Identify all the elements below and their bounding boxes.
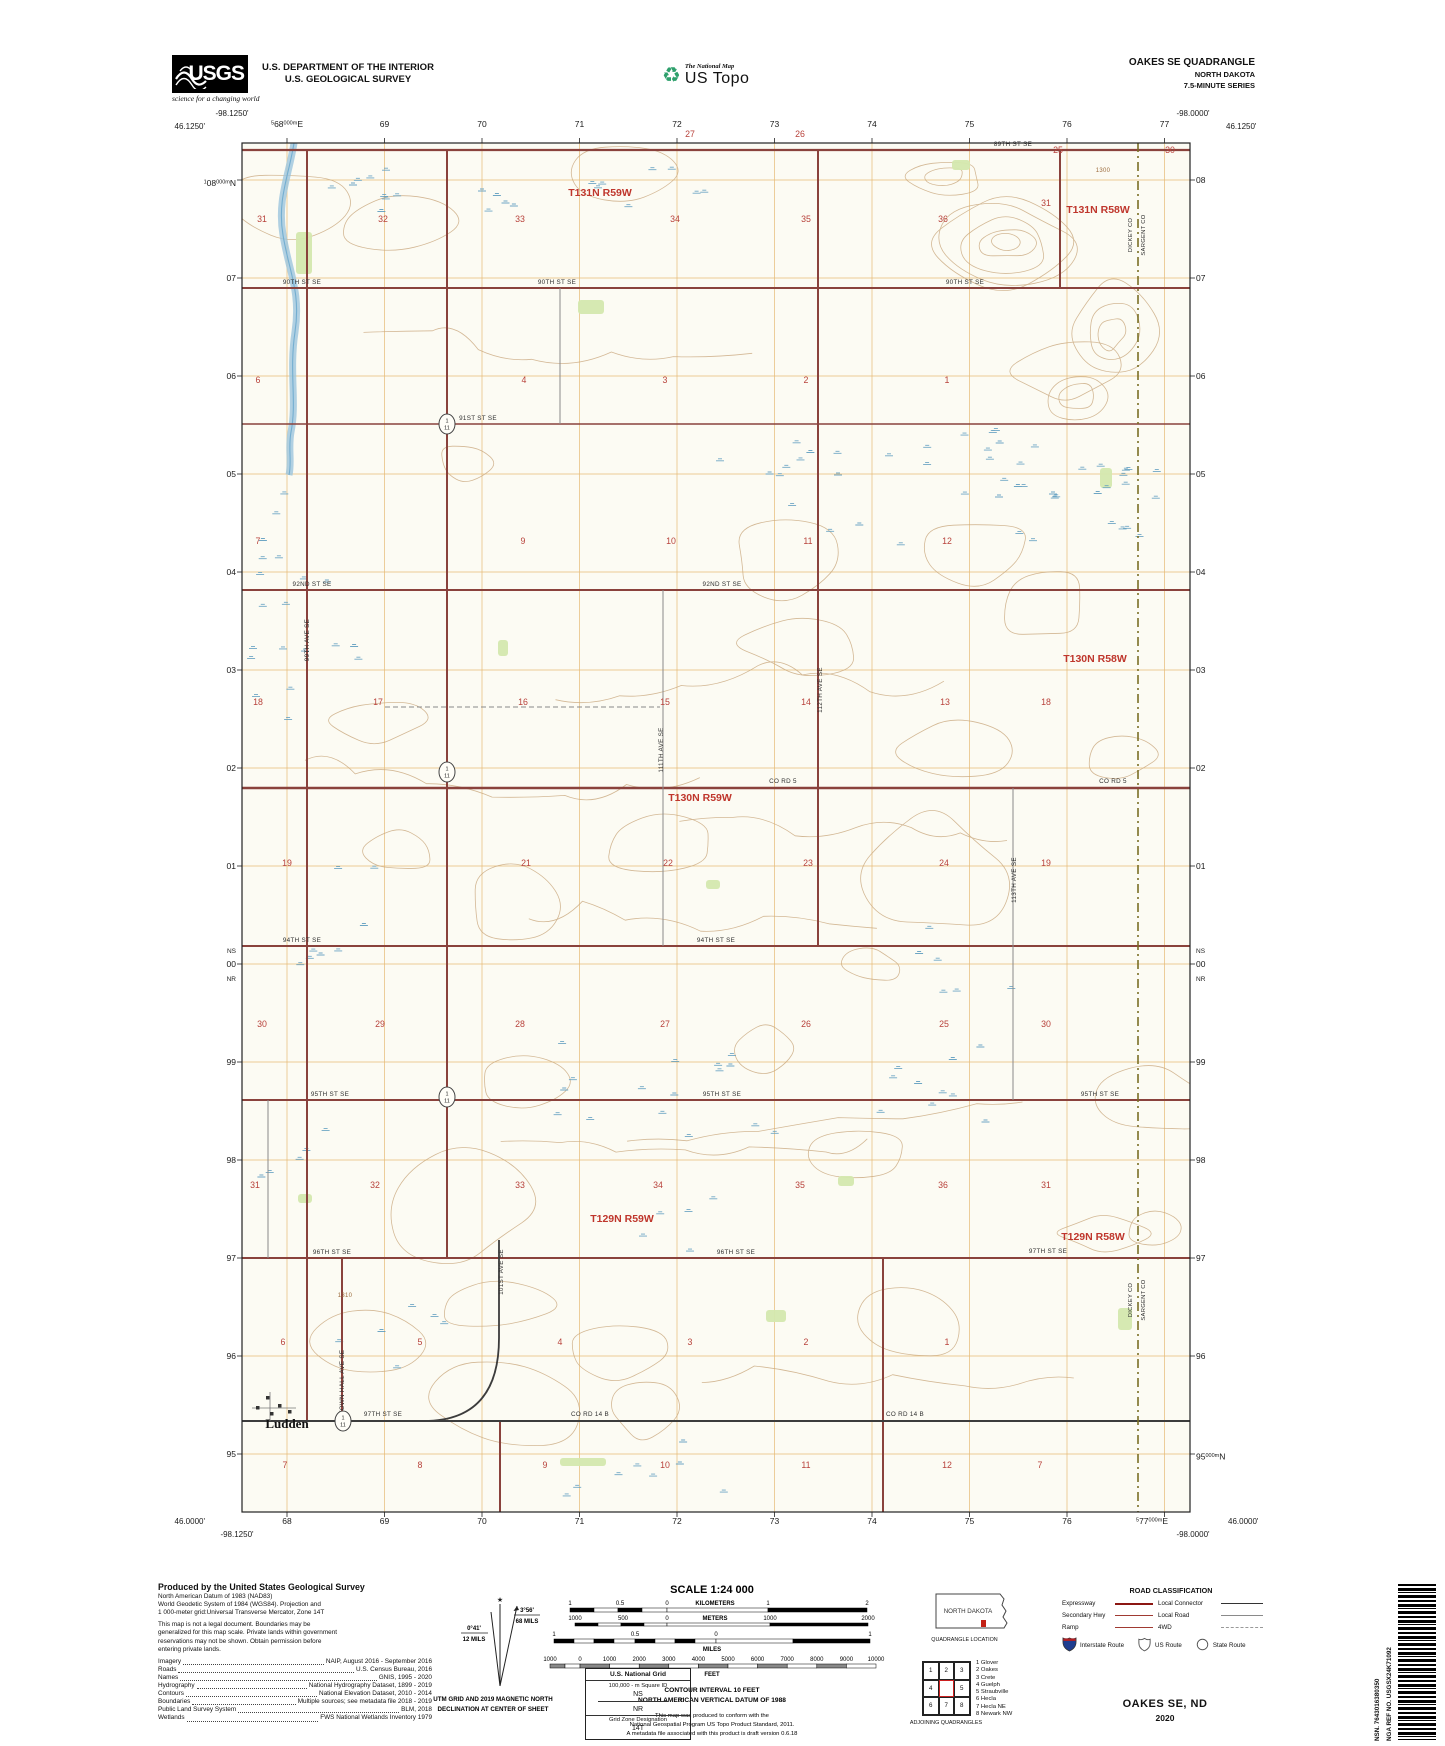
usng-square-label: 100,000 - m Square ID xyxy=(586,1680,690,1689)
vegetation xyxy=(706,880,720,889)
datum-line: North American Datum of 1983 (NAD83) xyxy=(158,1593,432,1601)
road-name: 96TH ST SE xyxy=(717,1249,755,1256)
vegetation xyxy=(578,300,604,314)
county-name: SARGENT CO xyxy=(1141,1279,1147,1320)
section-number: 36 xyxy=(938,1180,948,1190)
mi-scale-bar xyxy=(695,1639,716,1643)
utm-label-part: N xyxy=(1219,1452,1225,1462)
usng-nr: NR xyxy=(586,1706,690,1713)
section-number: 16 xyxy=(518,697,528,707)
road-class-label: 4WD xyxy=(1158,1624,1216,1631)
road-name: 89TH ST SE xyxy=(994,141,1032,148)
adjoining-list: 1 Glover2 Oakes3 Crete4 Guelph5 Straubvi… xyxy=(976,1660,1012,1718)
produced-title: Produced by the United States Geological… xyxy=(158,1583,432,1591)
northing-label: 06 xyxy=(1196,371,1206,381)
produced-block: Produced by the United States Geological… xyxy=(158,1583,432,1723)
easting-label: 74 xyxy=(867,119,877,129)
m-scale-label-unit: METERS xyxy=(702,1616,727,1622)
section-number: 31 xyxy=(250,1180,260,1190)
credit-leader xyxy=(178,1672,353,1673)
utm-label-part: N xyxy=(230,178,236,188)
building xyxy=(270,1412,274,1416)
northing-label: 97 xyxy=(227,1253,237,1263)
ft-scale-unit: FEET xyxy=(704,1672,720,1678)
section-number: 2 xyxy=(804,375,809,385)
northing-label: 04 xyxy=(227,567,237,577)
building xyxy=(278,1404,282,1408)
m-scale-bar xyxy=(770,1623,868,1626)
adjoining-quad-name: 6 Hecla xyxy=(976,1696,1012,1703)
recycle-icon: ♻ xyxy=(662,66,681,86)
mn-degrees: 3°56' xyxy=(520,1608,534,1614)
map-year: 2020 xyxy=(1100,1713,1230,1723)
northing-label: 01 xyxy=(227,861,237,871)
section-number: 19 xyxy=(1041,858,1051,868)
road-name: CO RD 5 xyxy=(769,778,797,785)
ft-scale-bar xyxy=(550,1664,565,1668)
section-number: 7 xyxy=(1038,1460,1043,1470)
m-scale-bar xyxy=(575,1623,598,1626)
credit-row: BoundariesMultiple sources; see metadata… xyxy=(158,1698,432,1706)
road-class-label: Secondary Hwy xyxy=(1062,1612,1110,1619)
m-scale-label: 500 xyxy=(618,1616,629,1622)
section-number: 3 xyxy=(663,375,668,385)
km-scale-bar xyxy=(618,1608,642,1612)
adjoining-cell: 1 xyxy=(923,1662,939,1680)
northing-label: 03 xyxy=(1196,665,1206,675)
declination-caption: DECLINATION AT CENTER OF SHEET xyxy=(438,1706,549,1713)
datum-lines: North American Datum of 1983 (NAD83)Worl… xyxy=(158,1593,432,1617)
km-scale-bar xyxy=(594,1608,618,1612)
nsn-number: NSN. 7643016380350 xyxy=(1374,1585,1381,1741)
road-class-sample-ramp xyxy=(1115,1627,1153,1628)
grid-square-id: NS xyxy=(1196,948,1206,955)
datum-line: World Geodetic System of 1984 (WGS84). P… xyxy=(158,1601,432,1609)
road-classification-rows: ExpresswayLocal ConnectorSecondary HwyLo… xyxy=(1062,1600,1280,1631)
easting-label: 70 xyxy=(477,1516,487,1526)
legal-line: This map is not a legal document. Bounda… xyxy=(158,1621,432,1629)
section-number-margin: 27 xyxy=(685,129,695,139)
route-number: 1 xyxy=(341,1416,344,1422)
legal-line: reservations may not be shown. Obtain pe… xyxy=(158,1638,432,1646)
mi-scale-bar xyxy=(793,1639,870,1643)
section-number: 18 xyxy=(1041,697,1051,707)
northing-label: 95000mN xyxy=(1196,1452,1225,1462)
section-number: 8 xyxy=(418,1460,423,1470)
utm-label-part: E xyxy=(297,119,303,129)
credit-source: Imagery xyxy=(158,1658,181,1666)
northing-label: 96 xyxy=(227,1351,237,1361)
km-scale-label: 0 xyxy=(665,1601,669,1607)
adjoining-cell: 7 xyxy=(939,1697,955,1715)
route-number: 11 xyxy=(444,1099,450,1105)
township-label: T130N R59W xyxy=(668,792,732,804)
ft-scale-label: 3000 xyxy=(662,1657,676,1663)
county-name: DICKEY CO xyxy=(1128,1283,1134,1318)
km-scale-label-unit: KILOMETERS xyxy=(695,1601,734,1607)
credit-value: NAIP, August 2016 - September 2016 xyxy=(326,1658,432,1666)
road-name: 90TH ST SE xyxy=(946,279,984,286)
northing-label: 02 xyxy=(227,763,237,773)
ft-scale-bar xyxy=(787,1664,817,1668)
route-legend-label: Interstate Route xyxy=(1080,1642,1124,1649)
section-number: 3 xyxy=(688,1337,693,1347)
adjoining-caption: ADJOINING QUADRANGLES xyxy=(893,1720,999,1726)
road-name: CO RD 14 B xyxy=(886,1411,924,1418)
northing-label: 00 xyxy=(1196,959,1206,969)
section-number: 2 xyxy=(804,1337,809,1347)
credit-leader xyxy=(187,1721,319,1722)
northing-label: 05 xyxy=(227,469,237,479)
grid-square-id: NR xyxy=(227,976,237,983)
credit-leader xyxy=(186,1696,317,1697)
m-scale-label: 1000 xyxy=(568,1616,582,1622)
road-classification-title: ROAD CLASSIFICATION xyxy=(1062,1586,1280,1595)
ft-scale-label: 5000 xyxy=(721,1657,735,1663)
ustopo-logo: ♻ The National Map US Topo xyxy=(662,63,749,88)
corner-coordinate: 46.1250' xyxy=(1226,122,1257,131)
credit-source: Public Land Survey System xyxy=(158,1706,236,1714)
us-route-shield-icon xyxy=(1137,1637,1152,1654)
northing-label: 08 xyxy=(1196,175,1206,185)
usng-zone: 14T xyxy=(586,1725,690,1732)
corner-coordinate: -98.0000' xyxy=(1176,109,1210,118)
road-name: 113TH AVE SE xyxy=(1011,857,1018,903)
northing-label: 01 xyxy=(1196,861,1206,871)
credit-leader xyxy=(183,1664,324,1665)
road-class-label: Ramp xyxy=(1062,1624,1110,1631)
quad-name: OAKES SE QUADRANGLE xyxy=(1085,57,1255,68)
credit-source: Wetlands xyxy=(158,1714,185,1722)
adjoining-quad-name: 8 Newark NW xyxy=(976,1711,1012,1718)
km-scale-label: 2 xyxy=(865,1601,869,1607)
easting-label: 577000mE xyxy=(1136,1516,1168,1526)
northing-label: 07 xyxy=(1196,273,1206,283)
easting-label: 76 xyxy=(1062,1516,1072,1526)
road-name: 97TH ST SE xyxy=(364,1411,402,1418)
adjoining-cell: 3 xyxy=(954,1662,970,1680)
magnetic-north-arrowhead xyxy=(514,1606,520,1611)
adjoining-cell: 6 xyxy=(923,1697,939,1715)
easting-label: 69 xyxy=(380,1516,390,1526)
county-name: DICKEY CO xyxy=(1128,218,1134,253)
easting-label: 71 xyxy=(575,119,585,129)
grid-north-line xyxy=(491,1612,500,1686)
vegetation xyxy=(766,1310,786,1322)
adjoining-cell-current xyxy=(939,1680,955,1698)
ft-scale-label: 0 xyxy=(578,1657,582,1663)
northing-label: 96 xyxy=(1196,1351,1206,1361)
adjoining-cell: 4 xyxy=(923,1680,939,1698)
utm-label-part: 000m xyxy=(1149,1518,1163,1524)
adjoining-quad-name: 5 Straubville xyxy=(976,1689,1012,1696)
northing-label: 06 xyxy=(227,371,237,381)
credit-leader xyxy=(238,1712,399,1713)
adjoining-quad-name: 1 Glover xyxy=(976,1660,1012,1667)
route-legend-label: US Route xyxy=(1155,1642,1182,1649)
northing-label: 108000mN xyxy=(204,178,236,188)
map-title: OAKES SE, ND xyxy=(1100,1698,1230,1710)
section-number: 15 xyxy=(660,697,670,707)
state-route-shield: 111 xyxy=(439,414,455,434)
declination-caption: UTM GRID AND 2019 MAGNETIC NORTH xyxy=(433,1696,553,1703)
easting-label: 76 xyxy=(1062,119,1072,129)
ft-scale-label: 10000 xyxy=(868,1657,885,1663)
quadrangle-heading: OAKES SE QUADRANGLE NORTH DAKOTA 7.5-MIN… xyxy=(1085,57,1255,90)
road-name: 111TH AVE SE xyxy=(658,727,665,772)
northing-label: 04 xyxy=(1196,567,1206,577)
magnetic-north-line xyxy=(500,1606,517,1686)
section-number: 33 xyxy=(515,214,525,224)
section-number: 4 xyxy=(522,375,527,385)
utm-label-part: 000m xyxy=(1205,1453,1219,1459)
northing-label: 07 xyxy=(227,273,237,283)
legal-line: entering private lands. xyxy=(158,1646,432,1654)
easting-label: 72 xyxy=(672,1516,682,1526)
credit-row: WetlandsFWS National Wetlands Inventory … xyxy=(158,1714,432,1722)
credit-value: GNIS, 1995 - 2020 xyxy=(379,1674,432,1682)
easting-label: 75 xyxy=(965,1516,975,1526)
credit-row: ContoursNational Elevation Dataset, 2010… xyxy=(158,1690,432,1698)
place-name: Ludden xyxy=(265,1416,309,1431)
ft-scale-bar xyxy=(846,1664,876,1668)
state-route-shield: 111 xyxy=(335,1411,351,1431)
state-route-circle-icon xyxy=(1195,1637,1210,1654)
road-name: 96TH ST SE xyxy=(313,1249,351,1256)
section-number: 27 xyxy=(660,1019,670,1029)
credit-leader xyxy=(192,1704,295,1705)
easting-label: 73 xyxy=(770,119,780,129)
map-sheet: USGS science for a changing world U.S. D… xyxy=(0,0,1445,1746)
county-name: SARGENT CO xyxy=(1141,214,1147,255)
credit-value: National Hydrography Dataset, 1899 - 201… xyxy=(309,1682,432,1690)
section-number: 1 xyxy=(945,375,950,385)
vegetation xyxy=(560,1458,606,1466)
adjoining-grid: 12345678 xyxy=(922,1661,971,1716)
state-route-shield: 111 xyxy=(439,1087,455,1107)
section-number: 22 xyxy=(663,858,673,868)
quad-state: NORTH DAKOTA xyxy=(1085,70,1255,79)
scale-title: SCALE 1:24 000 xyxy=(670,1584,754,1596)
northing-label: 98 xyxy=(1196,1155,1206,1165)
road-name: 97TH ST SE xyxy=(1029,1248,1067,1255)
ft-scale-label: 8000 xyxy=(810,1657,824,1663)
road-name: 95TH ST SE xyxy=(1081,1091,1119,1098)
m-scale-bar xyxy=(621,1623,644,1626)
mi-scale-label: 0 xyxy=(714,1632,718,1638)
easting-label: 74 xyxy=(867,1516,877,1526)
route-number: 1 xyxy=(445,419,448,425)
road-class-sample-expressway xyxy=(1115,1603,1153,1605)
section-number: 10 xyxy=(666,536,676,546)
mi-scale-bar xyxy=(716,1639,793,1643)
route-legend-item: State Route xyxy=(1195,1637,1246,1654)
road-name: 99TH AVE SE xyxy=(304,619,311,661)
easting-label: 77 xyxy=(1160,119,1170,129)
road-name: 101ST AVE SE xyxy=(498,1249,505,1295)
road-name: 91ST ST SE xyxy=(459,415,497,422)
building xyxy=(288,1410,292,1414)
locator-caption: QUADRANGLE LOCATION xyxy=(922,1637,1007,1643)
route-number: 11 xyxy=(444,774,450,780)
quad-series: 7.5-MINUTE SERIES xyxy=(1085,81,1255,90)
road-name: TOWN HALL AVE SE xyxy=(339,1350,346,1415)
northing-label: 02 xyxy=(1196,763,1206,773)
utm-label-part: 95 xyxy=(1196,1452,1206,1462)
route-number: 1 xyxy=(445,1092,448,1098)
section-number: 35 xyxy=(795,1180,805,1190)
road-name: CO RD 14 B xyxy=(571,1411,609,1418)
ft-scale-label: 1000 xyxy=(543,1657,557,1663)
m-scale-bar xyxy=(667,1623,770,1626)
mi-scale-label: 0.5 xyxy=(631,1632,640,1638)
road-class-sample-secondary xyxy=(1115,1615,1153,1616)
northing-label: 95 xyxy=(227,1449,237,1459)
section-number: 32 xyxy=(378,214,388,224)
credit-value: BLM, 2018 xyxy=(401,1706,432,1714)
route-legend-item: US Route xyxy=(1137,1637,1182,1654)
road-name: 90TH ST SE xyxy=(283,279,321,286)
km-scale-label: 1 xyxy=(568,1601,572,1607)
section-number: 7 xyxy=(256,536,261,546)
credit-value: U.S. Census Bureau, 2016 xyxy=(356,1666,432,1674)
township-label: T130N R58W xyxy=(1063,653,1127,665)
route-number: 11 xyxy=(444,426,450,432)
section-number: 14 xyxy=(801,697,811,707)
easting-label: 72 xyxy=(672,119,682,129)
credit-source: Boundaries xyxy=(158,1698,190,1706)
section-number: 11 xyxy=(803,536,812,546)
usng-zone-label: Grid Zone Designation xyxy=(586,1715,690,1724)
m-scale-label: 0 xyxy=(665,1616,669,1622)
credit-value: Multiple sources; see metadata file 2018… xyxy=(298,1698,432,1706)
legal-line: generalized for this map scale. Private … xyxy=(158,1629,432,1637)
section-number: 9 xyxy=(543,1460,548,1470)
ustopo-label: US Topo xyxy=(685,70,750,88)
section-number: 23 xyxy=(803,858,813,868)
section-number: 30 xyxy=(1041,1019,1051,1029)
mi-scale-bar xyxy=(594,1639,614,1643)
corner-coordinate: 46.0000' xyxy=(175,1517,206,1526)
corner-coordinate: 46.1250' xyxy=(175,122,206,131)
section-number: 10 xyxy=(660,1460,670,1470)
northing-label: 99 xyxy=(1196,1057,1206,1067)
mi-scale-bar xyxy=(614,1639,635,1643)
ft-scale-label: 6000 xyxy=(751,1657,765,1663)
utm-label-part: 000m xyxy=(284,121,298,127)
adjoining-quad-name: 4 Guelph xyxy=(976,1682,1012,1689)
corner-coordinate: 46.0000' xyxy=(1228,1517,1259,1526)
section-number: 28 xyxy=(515,1019,525,1029)
road-name: 95TH ST SE xyxy=(703,1091,741,1098)
section-number: 9 xyxy=(521,536,526,546)
section-number-margin: 30 xyxy=(1165,145,1175,155)
easting-label: 68 xyxy=(282,1516,292,1526)
km-scale-label: 1 xyxy=(766,1601,770,1607)
gn-degrees: 0°41' xyxy=(467,1626,481,1632)
section-number: 25 xyxy=(939,1019,949,1029)
topo-map: 568000mE69707172737475767768697071727374… xyxy=(140,95,1260,1575)
mn-mils: 68 MILS xyxy=(516,1619,539,1625)
section-number: 31 xyxy=(1041,198,1051,208)
contour-elevation: 1300 xyxy=(1096,168,1111,174)
section-number: 5 xyxy=(418,1337,423,1347)
section-number: 19 xyxy=(282,858,292,868)
section-number: 35 xyxy=(801,214,811,224)
route-legend-label: State Route xyxy=(1213,1642,1246,1649)
route-legend-item: Interstate Route xyxy=(1062,1637,1124,1654)
road-class-sample-connector xyxy=(1221,1603,1263,1604)
mi-scale-bar xyxy=(574,1639,594,1643)
m-scale-label: 1000 xyxy=(763,1616,777,1622)
mi-scale-bar xyxy=(675,1639,695,1643)
corner-coordinate: -98.1250' xyxy=(220,1530,254,1539)
credit-leader xyxy=(197,1688,307,1689)
utm-label-part: E xyxy=(1162,1516,1168,1526)
township-label: T129N R59W xyxy=(590,1213,654,1225)
adjoining-cell: 8 xyxy=(954,1697,970,1715)
grid-square-id: NR xyxy=(1196,976,1206,983)
section-number: 6 xyxy=(256,375,261,385)
mi-scale-bar xyxy=(635,1639,655,1643)
section-number: 31 xyxy=(1041,1180,1051,1190)
northing-label: 05 xyxy=(1196,469,1206,479)
usng-divider xyxy=(598,1701,668,1702)
km-scale-label: 0.5 xyxy=(616,1601,625,1607)
corner-coordinate: -98.0000' xyxy=(1176,1530,1210,1539)
datum-line: 1 000-meter grid:Universal Transverse Me… xyxy=(158,1609,432,1617)
section-number: 24 xyxy=(939,858,949,868)
section-number: 17 xyxy=(373,697,383,707)
ft-scale-bar xyxy=(758,1664,788,1668)
section-number: 32 xyxy=(370,1180,380,1190)
map-title-block: OAKES SE, ND 2020 xyxy=(1100,1698,1230,1723)
section-number-margin: 25 xyxy=(1053,145,1063,155)
section-number: 31 xyxy=(257,214,267,224)
mi-scale-bar xyxy=(554,1639,574,1643)
adjoining-cell: 2 xyxy=(939,1662,955,1680)
road-name: 92ND ST SE xyxy=(293,581,332,588)
section-number: 1 xyxy=(945,1337,950,1347)
interstate-shield-icon xyxy=(1062,1637,1077,1654)
usgs-wave-icon xyxy=(174,59,208,89)
nga-ref-number: NGA REF NO. USGSX24K71092 xyxy=(1386,1585,1393,1741)
road-name: CO RD 5 xyxy=(1099,778,1127,785)
section-number: 4 xyxy=(558,1337,563,1347)
easting-label: 69 xyxy=(380,119,390,129)
route-shield-legend: Interstate RouteUS RouteState Route xyxy=(1062,1637,1280,1654)
national-map-label: The National Map xyxy=(685,63,750,70)
contour-elevation: 1310 xyxy=(338,1293,353,1299)
credit-row: RoadsU.S. Census Bureau, 2016 xyxy=(158,1666,432,1674)
northing-label: 97 xyxy=(1196,1253,1206,1263)
vegetation xyxy=(498,640,508,656)
credit-row: Public Land Survey SystemBLM, 2018 xyxy=(158,1706,432,1714)
easting-label: 568000mE xyxy=(271,119,303,129)
vegetation xyxy=(952,160,970,170)
km-scale-bar xyxy=(667,1608,768,1612)
route-number: 1 xyxy=(445,767,448,773)
easting-label: 73 xyxy=(770,1516,780,1526)
road-name: 94TH ST SE xyxy=(283,937,321,944)
credit-source: Hydrography xyxy=(158,1682,195,1690)
section-number: 34 xyxy=(653,1180,663,1190)
dept-line2: U.S. GEOLOGICAL SURVEY xyxy=(258,74,438,86)
state-route-shield: 111 xyxy=(439,762,455,782)
road-class-sample-local xyxy=(1221,1615,1263,1616)
ft-scale-label: 1000 xyxy=(603,1657,617,1663)
ft-scale-bar xyxy=(565,1664,580,1668)
